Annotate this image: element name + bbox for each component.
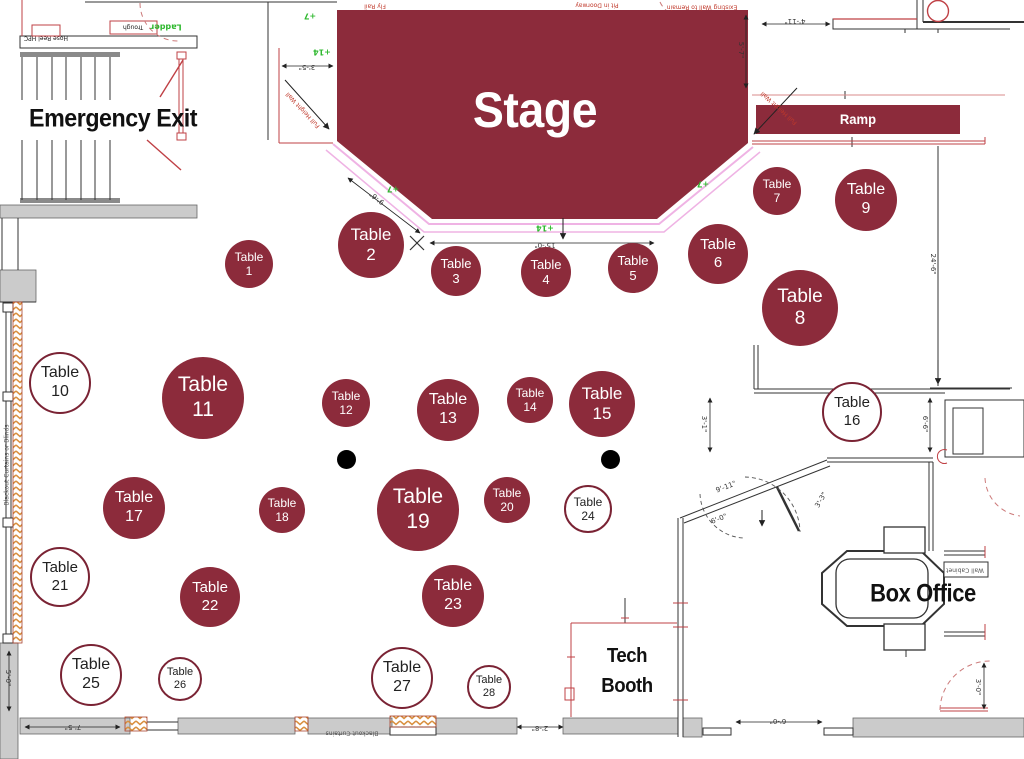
- table-word: Table: [582, 384, 623, 404]
- table-number: 10: [51, 383, 69, 402]
- table-word: Table: [777, 286, 822, 308]
- table-28[interactable]: Table28: [467, 665, 511, 709]
- table-3[interactable]: Table3: [431, 246, 481, 296]
- table-word: Table: [476, 674, 502, 687]
- table-8[interactable]: Table8: [762, 270, 838, 346]
- table-number: 6: [714, 254, 722, 272]
- table-number: 16: [844, 412, 861, 430]
- table-number: 15: [593, 404, 612, 424]
- table-number: 17: [125, 508, 143, 527]
- table-number: 2: [366, 245, 375, 265]
- table-number: 19: [406, 510, 429, 535]
- table-word: Table: [834, 394, 870, 412]
- table-24[interactable]: Table24: [564, 485, 612, 533]
- table-number: 11: [192, 398, 214, 423]
- table-number: 13: [439, 410, 457, 429]
- table-number: 5: [629, 268, 636, 283]
- table-18[interactable]: Table18: [259, 487, 305, 533]
- table-word: Table: [72, 656, 110, 675]
- table-number: 26: [174, 679, 186, 692]
- table-word: Table: [847, 181, 885, 200]
- table-word: Table: [41, 364, 79, 383]
- table-number: 25: [82, 675, 100, 694]
- table-word: Table: [617, 253, 648, 268]
- table-number: 14: [523, 400, 536, 414]
- table-word: Table: [192, 579, 228, 597]
- table-19[interactable]: Table19: [377, 469, 459, 551]
- table-word: Table: [429, 391, 467, 410]
- table-22[interactable]: Table22: [180, 567, 240, 627]
- table-number: 9: [862, 200, 871, 219]
- table-16[interactable]: Table16: [822, 382, 882, 442]
- table-word: Table: [383, 659, 421, 678]
- table-word: Table: [493, 486, 522, 500]
- table-15[interactable]: Table15: [569, 371, 635, 437]
- table-number: 27: [393, 678, 411, 697]
- table-2[interactable]: Table2: [338, 212, 404, 278]
- table-word: Table: [393, 485, 443, 510]
- table-word: Table: [235, 250, 264, 264]
- table-word: Table: [178, 373, 228, 398]
- table-word: Table: [763, 177, 792, 191]
- table-13[interactable]: Table13: [417, 379, 479, 441]
- table-word: Table: [115, 489, 153, 508]
- table-number: 4: [542, 272, 549, 287]
- table-number: 8: [795, 308, 806, 330]
- table-word: Table: [42, 559, 78, 577]
- table-9[interactable]: Table9: [835, 169, 897, 231]
- table-number: 7: [774, 191, 781, 205]
- tables-layer: Table1Table2Table3Table4Table5Table6Tabl…: [0, 0, 1024, 759]
- table-21[interactable]: Table21: [30, 547, 90, 607]
- table-10[interactable]: Table10: [29, 352, 91, 414]
- table-word: Table: [434, 577, 472, 596]
- table-23[interactable]: Table23: [422, 565, 484, 627]
- table-number: 23: [444, 596, 462, 615]
- table-number: 24: [581, 509, 594, 523]
- table-number: 22: [202, 597, 219, 615]
- table-word: Table: [574, 495, 603, 509]
- table-word: Table: [530, 257, 561, 272]
- table-word: Table: [700, 236, 736, 254]
- column-marker-dot: [337, 450, 356, 469]
- table-number: 3: [452, 271, 459, 286]
- column-marker-dot: [601, 450, 620, 469]
- table-word: Table: [268, 496, 297, 510]
- table-4[interactable]: Table4: [521, 247, 571, 297]
- table-25[interactable]: Table25: [60, 644, 122, 706]
- table-number: 20: [500, 500, 513, 514]
- table-number: 18: [275, 510, 288, 524]
- table-number: 21: [52, 577, 69, 595]
- table-word: Table: [440, 256, 471, 271]
- table-7[interactable]: Table7: [753, 167, 801, 215]
- table-number: 1: [246, 264, 253, 278]
- table-27[interactable]: Table27: [371, 647, 433, 709]
- table-number: 12: [339, 403, 352, 417]
- table-20[interactable]: Table20: [484, 477, 530, 523]
- table-word: Table: [516, 386, 545, 400]
- table-26[interactable]: Table26: [158, 657, 202, 701]
- table-11[interactable]: Table11: [162, 357, 244, 439]
- table-12[interactable]: Table12: [322, 379, 370, 427]
- table-word: Table: [332, 389, 361, 403]
- table-17[interactable]: Table17: [103, 477, 165, 539]
- table-6[interactable]: Table6: [688, 224, 748, 284]
- table-number: 28: [483, 687, 495, 700]
- table-word: Table: [351, 225, 392, 245]
- table-1[interactable]: Table1: [225, 240, 273, 288]
- floor-plan-canvas: +7+14+7+7+14Ladder15'-0"9'-6"3'-5"5'-7"4…: [0, 0, 1024, 759]
- table-14[interactable]: Table14: [507, 377, 553, 423]
- table-5[interactable]: Table5: [608, 243, 658, 293]
- table-word: Table: [167, 666, 193, 679]
